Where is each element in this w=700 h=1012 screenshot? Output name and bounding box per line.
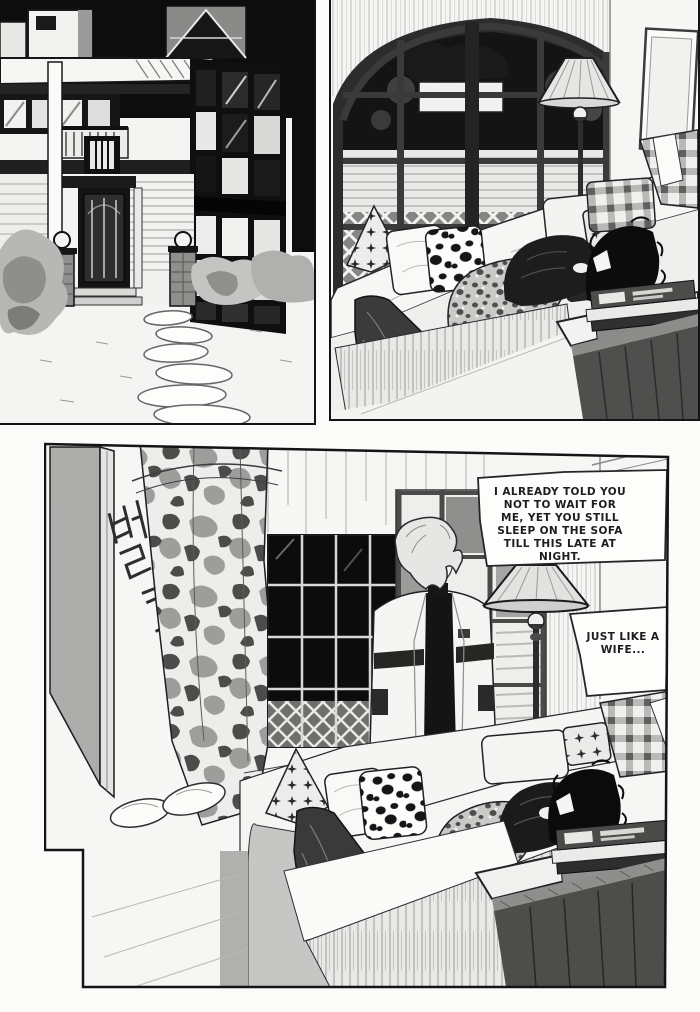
manga-page: I ALREADY TOLD YOU NOT TO WAIT FOR ME, Y… — [0, 0, 700, 1012]
gable-roof — [166, 6, 246, 58]
panel-living-room — [329, 0, 700, 421]
speech-bubble-2-text: JUST LIKE A WIFE... — [578, 631, 668, 657]
panel-house-exterior — [0, 0, 316, 425]
speech-bubble-1-text: I ALREADY TOLD YOU NOT TO WAIT FOR ME, Y… — [492, 486, 628, 564]
barred-window — [84, 136, 120, 174]
star-pillow-small-2 — [563, 722, 612, 766]
plaid-pillow — [586, 178, 655, 232]
living-room-illustration — [331, 0, 698, 419]
dalmatian-pillow-2 — [359, 766, 428, 840]
house-illustration — [0, 0, 314, 423]
